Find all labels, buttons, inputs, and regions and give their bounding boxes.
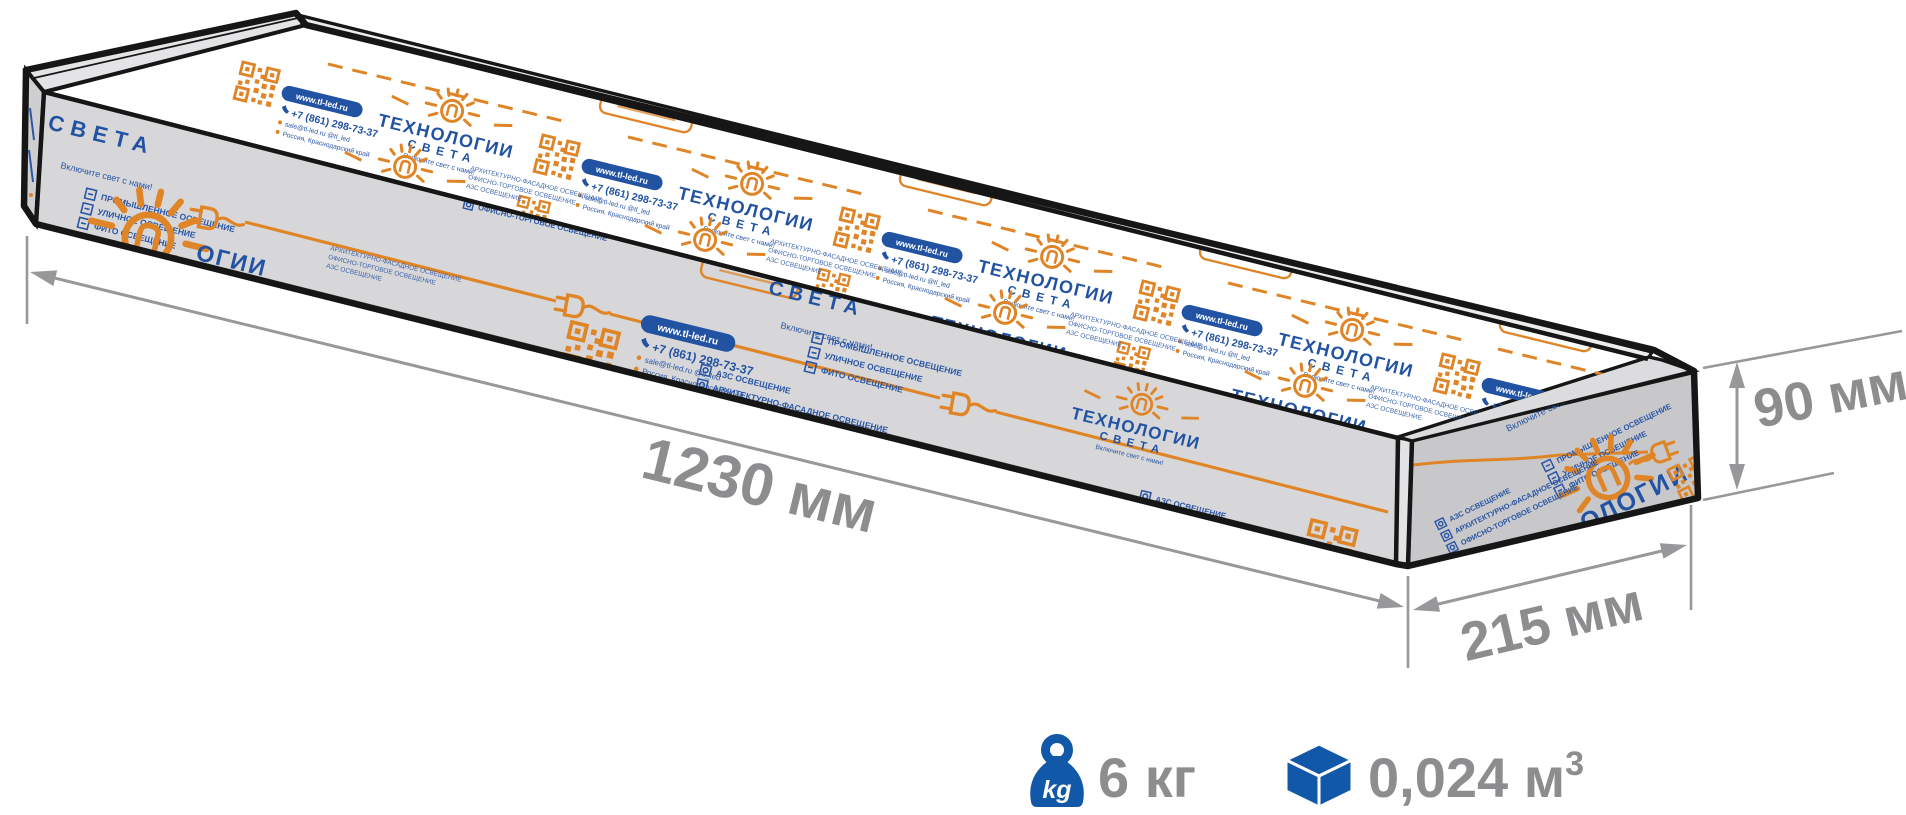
arrowhead: [1413, 596, 1440, 612]
volume-superscript: 3: [1565, 745, 1584, 783]
arrowhead: [1377, 593, 1404, 609]
kettlebell-icon: kg: [1030, 739, 1084, 808]
width-dimension-label: 215 мм: [1455, 572, 1649, 673]
volume-indicator: 0,024 м3: [1286, 744, 1584, 809]
length-dimension-label: 1230 мм: [636, 424, 884, 546]
package-dimensions-diagram: ТЕХНОЛОГИИ СВЕТА Включите свет с нами!: [0, 0, 1906, 815]
arrowhead: [1660, 543, 1687, 559]
diagram-canvas: ТЕХНОЛОГИИ СВЕТА Включите свет с нами!: [0, 0, 1906, 815]
height-dimension: 90 мм: [1703, 331, 1906, 500]
cube-icon: [1286, 744, 1352, 807]
height-dimension-label: 90 мм: [1749, 351, 1906, 439]
volume-value: 0,024 м3: [1368, 745, 1584, 809]
weight-value: 6 кг: [1098, 746, 1196, 809]
package-box: СВЕТА Включите свет с нами! ОГИИ СВЕТА В…: [24, 13, 1741, 576]
arrowhead: [1729, 362, 1745, 388]
weight-indicator: kg 6 кг: [1030, 739, 1196, 810]
extension-line: [1703, 473, 1834, 500]
kg-icon-label: kg: [1042, 776, 1071, 804]
arrowhead: [30, 270, 57, 286]
arrowhead: [1729, 464, 1745, 490]
